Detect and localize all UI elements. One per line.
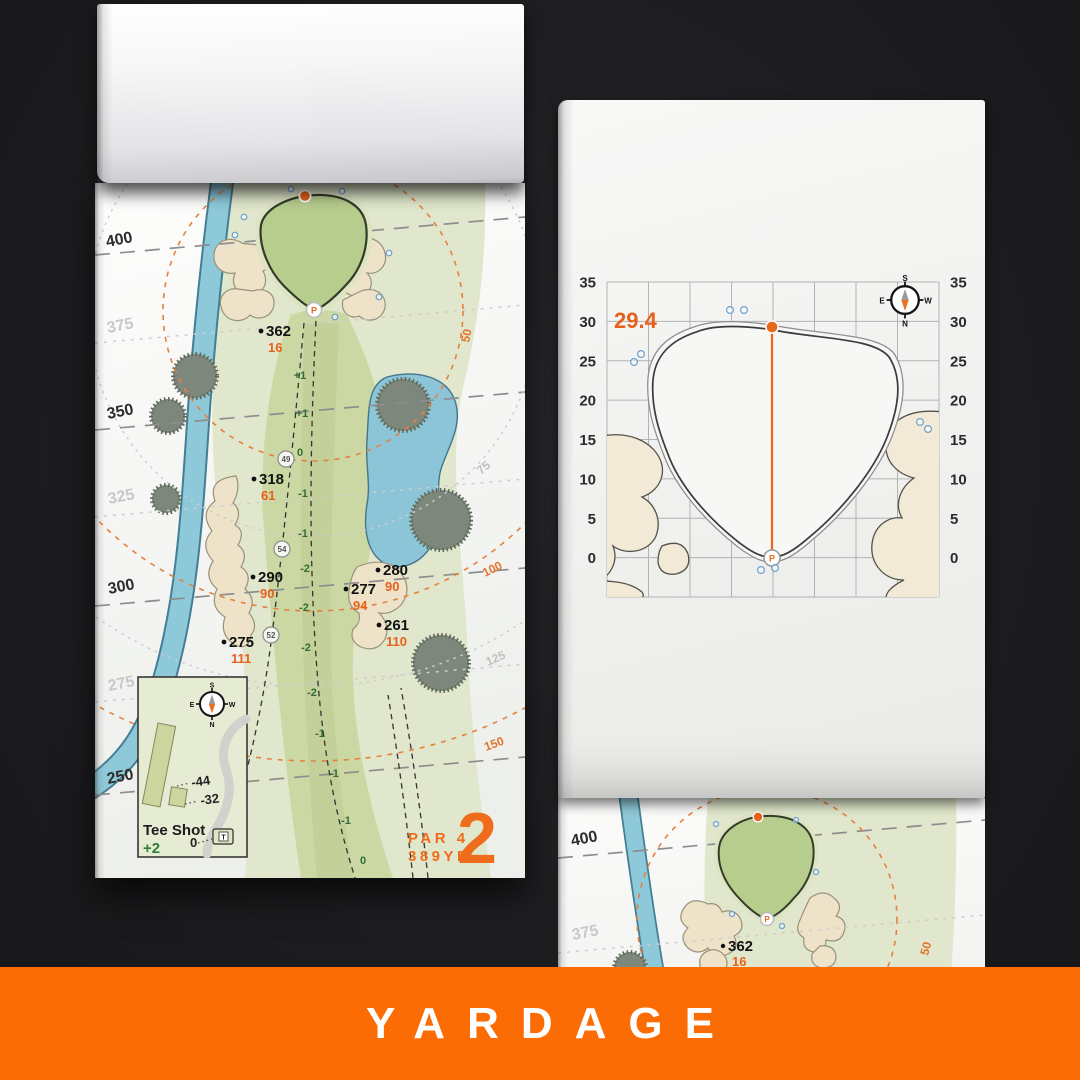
tee-distance-32: -32 [199,791,220,808]
svg-text:-1: -1 [341,815,351,827]
svg-text:94: 94 [353,598,368,613]
svg-text:15: 15 [950,432,967,449]
tee-box-small [169,787,188,807]
flipped-page [97,4,524,183]
page-curl-shade [558,730,985,798]
circled-number-52: 52 [263,627,279,643]
svg-text:16: 16 [268,340,282,355]
hole-map-graphic: P 49 54 52 [95,183,525,878]
yardage-book-scene: P 49 54 52 [0,0,1080,1080]
back-edge-dot [767,322,778,333]
svg-text:-1: -1 [298,488,308,500]
svg-text:111: 111 [231,651,251,666]
svg-text:-2: -2 [307,687,317,699]
green-detail-graphic: P 35 30 25 20 15 10 5 0 35 30 [558,100,985,798]
svg-text:25: 25 [579,353,596,370]
svg-text:5: 5 [950,511,958,528]
tee-handicap: +2 [143,840,160,857]
svg-text:20: 20 [950,393,967,410]
svg-text:-1: -1 [298,528,308,540]
front-pin-label: P [769,554,775,564]
svg-text:61: 61 [261,488,275,503]
svg-text:10: 10 [579,471,596,488]
svg-text:110: 110 [386,634,407,649]
svg-text:10: 10 [950,471,967,488]
circled-49-label: 49 [282,455,291,464]
svg-text:-2: -2 [299,602,309,614]
green-front-label: P [311,306,317,316]
svg-text:35: 35 [950,275,967,292]
green-detail-page: P 35 30 25 20 15 10 5 0 35 30 [558,100,985,798]
tee-shot-inset: -44 -32 0 Tee Shot +2 T S N W [138,677,247,857]
svg-text:90: 90 [260,586,274,601]
svg-text:25: 25 [950,353,967,370]
svg-text:90: 90 [385,579,399,594]
svg-text:S: S [210,683,215,690]
svg-text:0: 0 [360,855,366,867]
back-pin-dot [300,191,310,201]
svg-text:-2: -2 [301,642,311,654]
svg-text:20: 20 [579,393,596,410]
svg-text:N: N [209,722,214,729]
hole-map-page: P 49 54 52 [95,183,525,878]
svg-text:0: 0 [588,550,596,567]
svg-text:30: 30 [579,314,596,331]
svg-text:-1: -1 [329,768,339,780]
svg-text:35: 35 [579,275,596,292]
svg-text:290: 290 [258,569,283,586]
svg-text:30: 30 [950,314,967,331]
tee-distance-44: -44 [190,772,211,790]
yardage-banner: YARDAGE [0,967,1080,1080]
svg-text:S: S [902,274,908,283]
hole-number: 2 [457,799,497,878]
svg-text:362: 362 [266,323,291,340]
page-curl-shade [97,4,113,183]
svg-text:277: 277 [351,581,376,598]
circled-54-label: 54 [278,545,287,554]
circled-number-54: 54 [274,541,290,557]
back-pin-dot [754,813,762,821]
svg-text:E: E [879,296,885,305]
svg-text:E: E [190,702,195,709]
svg-text:261: 261 [384,617,409,634]
circled-number-49: 49 [278,451,294,467]
svg-text:N: N [902,319,908,328]
svg-text:15: 15 [579,432,596,449]
circled-52-label: 52 [267,631,276,640]
svg-text:W: W [924,296,932,305]
tee-shot-title: Tee Shot [143,822,205,839]
svg-text:W: W [229,702,236,709]
svg-text:0: 0 [950,550,958,567]
svg-text:+1: +1 [294,370,307,382]
tee-marker-label: T [221,835,226,842]
green-front-label: P [764,915,770,924]
svg-text:318: 318 [259,471,284,488]
svg-text:+1: +1 [296,408,309,420]
svg-text:280: 280 [383,562,408,579]
svg-text:0: 0 [297,447,303,459]
svg-text:-1: -1 [315,728,325,740]
svg-text:5: 5 [588,511,596,528]
banner-label: YARDAGE [344,999,736,1049]
svg-text:362: 362 [728,938,753,955]
svg-text:275: 275 [229,634,254,651]
svg-text:-2: -2 [300,563,310,575]
green-depth-value: 29.4 [614,308,658,333]
